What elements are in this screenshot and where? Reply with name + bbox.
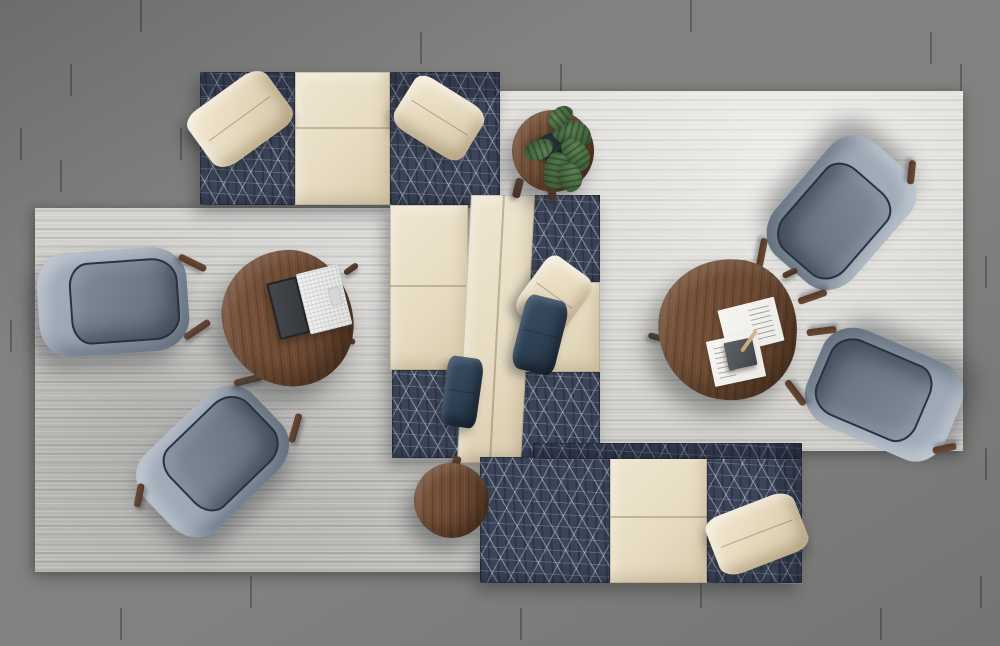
lounge-scene xyxy=(0,0,1000,646)
chair-leg xyxy=(907,160,916,185)
notebook xyxy=(723,337,757,370)
sofa-bottom xyxy=(480,443,802,583)
sofa-bottom-left-module xyxy=(480,457,610,583)
cushion-seam xyxy=(295,127,390,129)
cushion-seam xyxy=(390,285,468,287)
backrest-center-seam xyxy=(489,195,505,463)
bench-center xyxy=(390,205,612,465)
bench-left-seat xyxy=(390,205,468,370)
sofa-top xyxy=(200,72,500,205)
armchair-seat xyxy=(67,256,181,345)
sofa-top-center-seat xyxy=(295,72,390,205)
side-table-small xyxy=(414,463,489,538)
sofa-bottom-center-seat xyxy=(610,450,707,583)
armchair-upper-left xyxy=(35,245,192,359)
sofa-bottom-backrest-shade xyxy=(533,443,802,459)
cushion-seam xyxy=(610,516,707,518)
